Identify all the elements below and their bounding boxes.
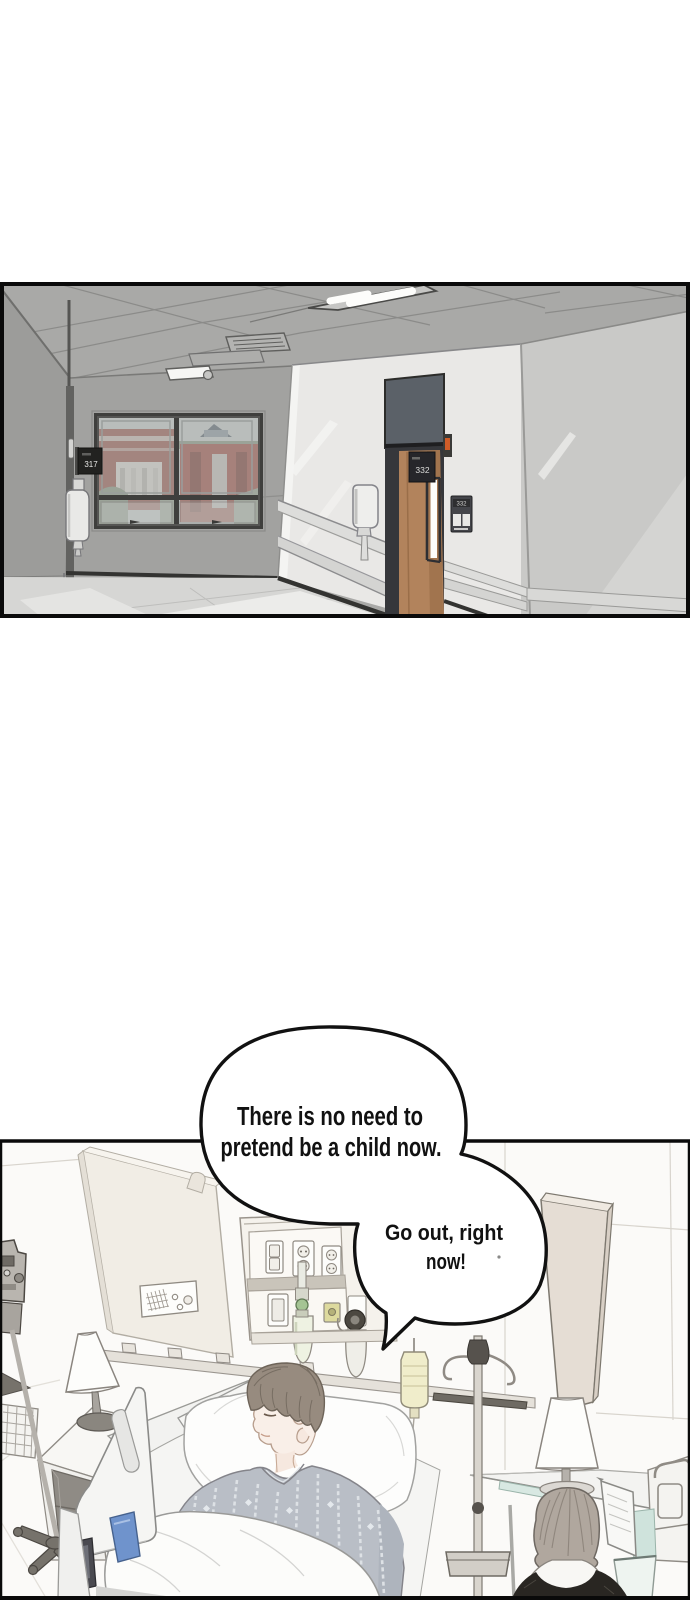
svg-text:Go out, right: Go out, right bbox=[385, 1220, 504, 1245]
svg-text:There is no need to: There is no need to bbox=[237, 1103, 423, 1131]
svg-text:now!: now! bbox=[426, 1249, 466, 1274]
svg-text:317: 317 bbox=[84, 460, 98, 469]
svg-text:332: 332 bbox=[415, 465, 429, 475]
svg-text:332: 332 bbox=[456, 502, 467, 508]
svg-text:pretend be a child now.: pretend be a child now. bbox=[221, 1134, 442, 1162]
